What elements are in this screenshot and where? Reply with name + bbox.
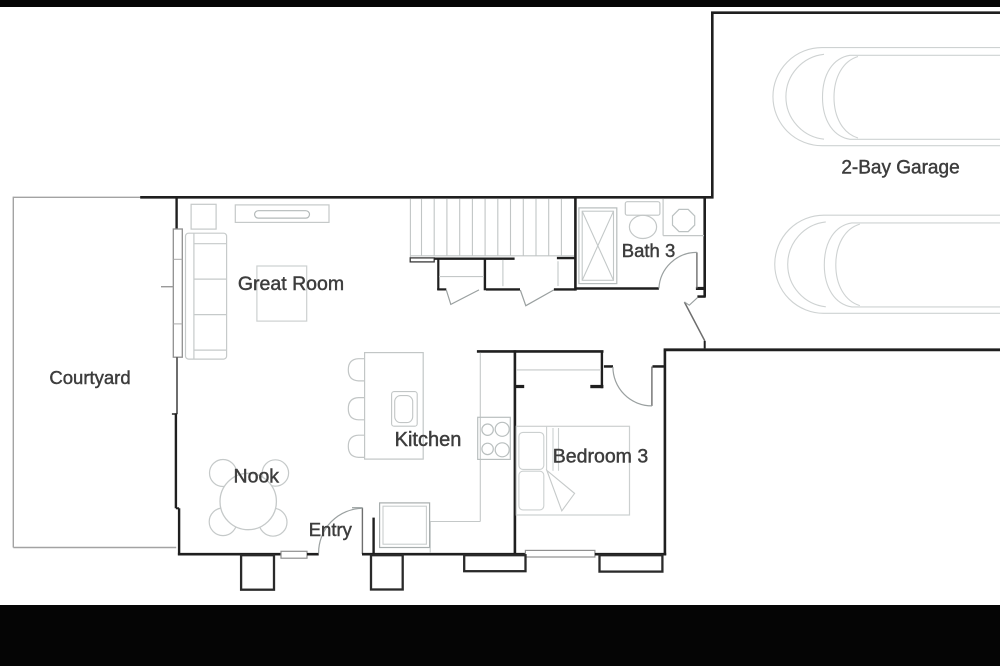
svg-text:Great Room: Great Room bbox=[238, 273, 344, 295]
svg-text:Bedroom 3: Bedroom 3 bbox=[553, 446, 648, 468]
svg-text:Kitchen: Kitchen bbox=[395, 429, 462, 451]
svg-text:Entry: Entry bbox=[309, 519, 353, 540]
svg-text:Courtyard: Courtyard bbox=[49, 367, 130, 388]
svg-text:Nook: Nook bbox=[234, 466, 280, 488]
svg-text:Bath 3: Bath 3 bbox=[622, 240, 676, 261]
svg-text:2-Bay Garage: 2-Bay Garage bbox=[841, 158, 959, 179]
